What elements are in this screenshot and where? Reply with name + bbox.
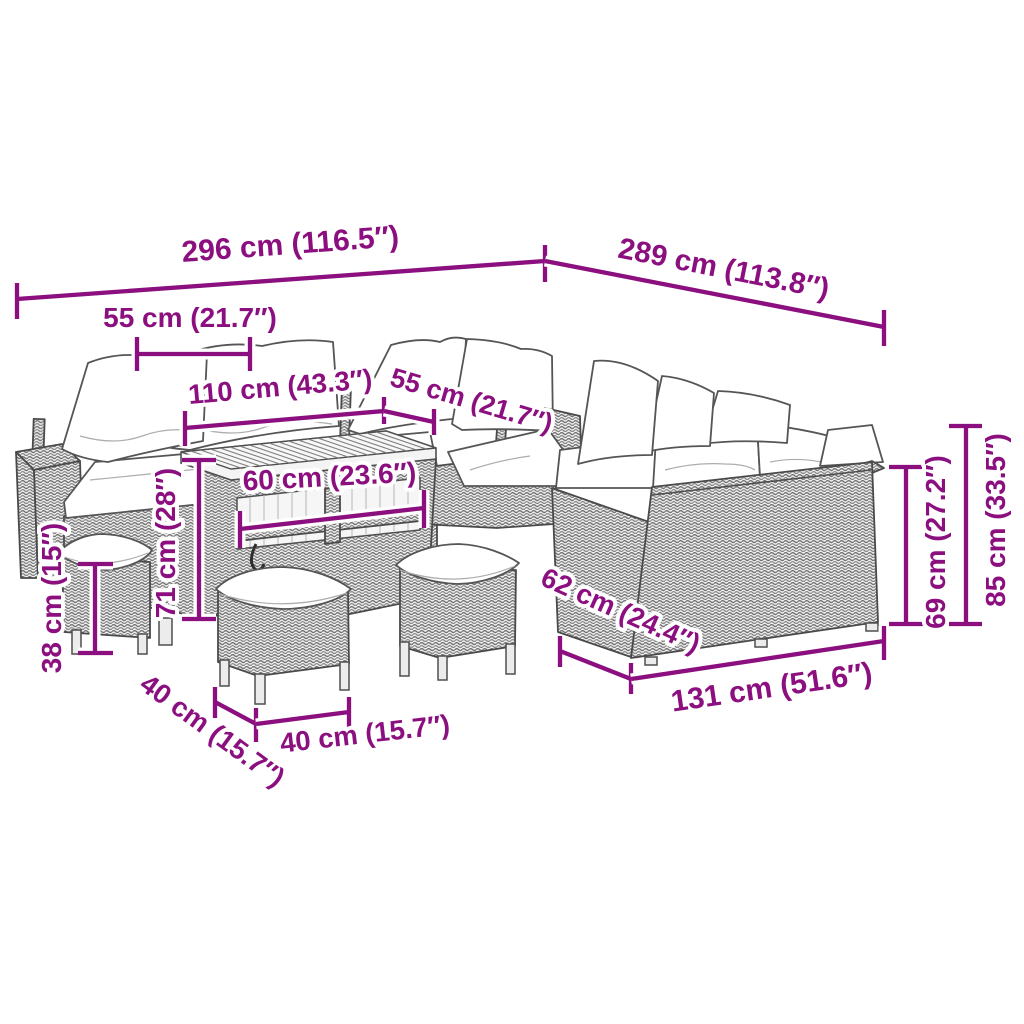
svg-text:71 cm (28″): 71 cm (28″) <box>150 468 181 618</box>
svg-text:38 cm (15″): 38 cm (15″) <box>36 523 67 673</box>
svg-text:85 cm (33.5″): 85 cm (33.5″) <box>980 433 1011 607</box>
svg-text:69 cm (27.2″): 69 cm (27.2″) <box>920 455 951 629</box>
svg-text:55 cm (21.7″): 55 cm (21.7″) <box>103 302 277 333</box>
